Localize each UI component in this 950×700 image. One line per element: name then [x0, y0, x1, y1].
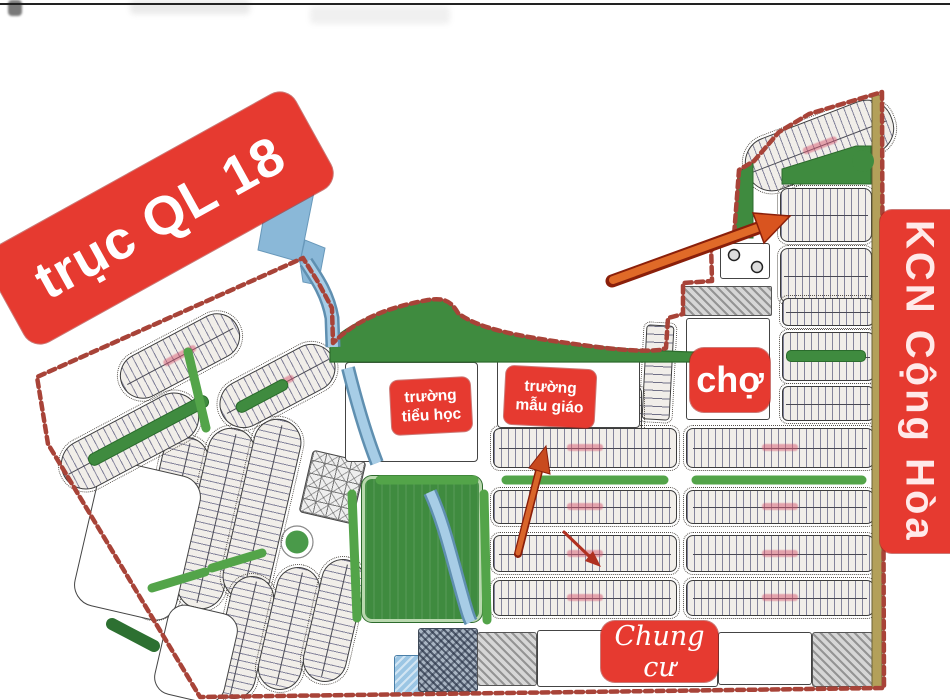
primary-school-text: trường tiểu học	[400, 385, 461, 427]
kindergarten-text: trường mẫu giáo	[515, 376, 585, 418]
market-label: chợ	[690, 348, 770, 412]
site-plan-map: trục QL 18 KCN Cộng Hòa chợ trường tiểu …	[0, 0, 950, 700]
industrial-zone-text: KCN Cộng Hòa	[880, 210, 950, 553]
kindergarten-label: trường mẫu giáo	[504, 366, 597, 429]
primary-school-line2: tiểu học	[401, 405, 461, 425]
kindergarten-line1: trường	[524, 377, 577, 397]
industrial-zone-banner: KCN Cộng Hòa	[880, 210, 950, 553]
road-label-ql18: trục QL 18	[0, 86, 339, 350]
road-label-text: trục QL 18	[24, 124, 296, 312]
apartment-label-text: Chung cư	[601, 621, 718, 683]
kindergarten-line2: mẫu giáo	[515, 396, 584, 417]
labels-layer: trục QL 18 KCN Cộng Hòa chợ trường tiểu …	[0, 0, 950, 700]
primary-school-line1: trường	[404, 386, 457, 406]
market-label-text: chợ	[696, 359, 764, 401]
primary-school-label: trường tiểu học	[390, 377, 473, 435]
apartment-label: Chung cư	[601, 621, 718, 682]
